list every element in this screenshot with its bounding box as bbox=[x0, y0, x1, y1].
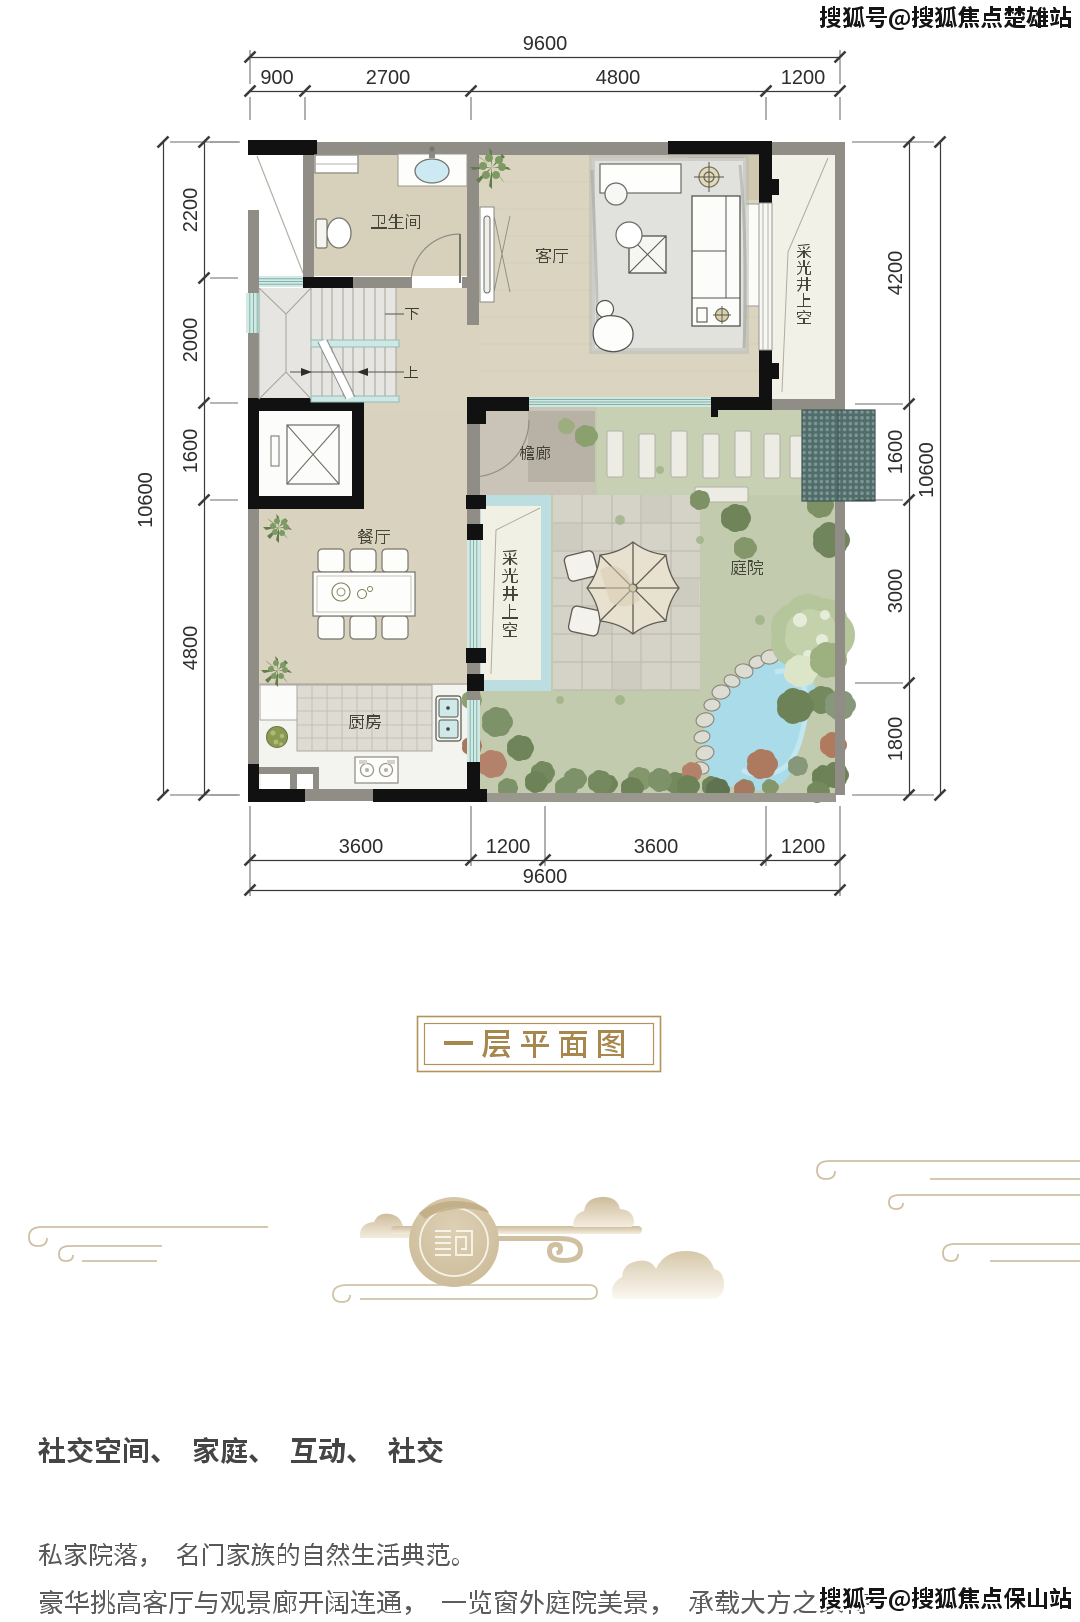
svg-text:9600: 9600 bbox=[523, 866, 568, 888]
svg-text:2000: 2000 bbox=[180, 318, 202, 363]
svg-text:3000: 3000 bbox=[885, 569, 907, 614]
svg-text:10600: 10600 bbox=[916, 442, 938, 498]
svg-text:1200: 1200 bbox=[781, 836, 826, 858]
svg-text:4800: 4800 bbox=[180, 626, 202, 671]
svg-text:2200: 2200 bbox=[180, 188, 202, 233]
svg-text:3600: 3600 bbox=[634, 836, 679, 858]
svg-text:9600: 9600 bbox=[523, 33, 568, 55]
svg-text:10600: 10600 bbox=[135, 472, 157, 528]
svg-text:1200: 1200 bbox=[486, 836, 531, 858]
svg-text:2700: 2700 bbox=[366, 67, 411, 89]
svg-text:1600: 1600 bbox=[885, 430, 907, 475]
svg-text:1200: 1200 bbox=[781, 67, 826, 89]
svg-text:900: 900 bbox=[260, 67, 293, 89]
svg-text:1800: 1800 bbox=[885, 717, 907, 762]
svg-text:3600: 3600 bbox=[339, 836, 384, 858]
svg-text:1600: 1600 bbox=[180, 429, 202, 474]
svg-text:4200: 4200 bbox=[885, 251, 907, 296]
svg-text:4800: 4800 bbox=[596, 67, 641, 89]
